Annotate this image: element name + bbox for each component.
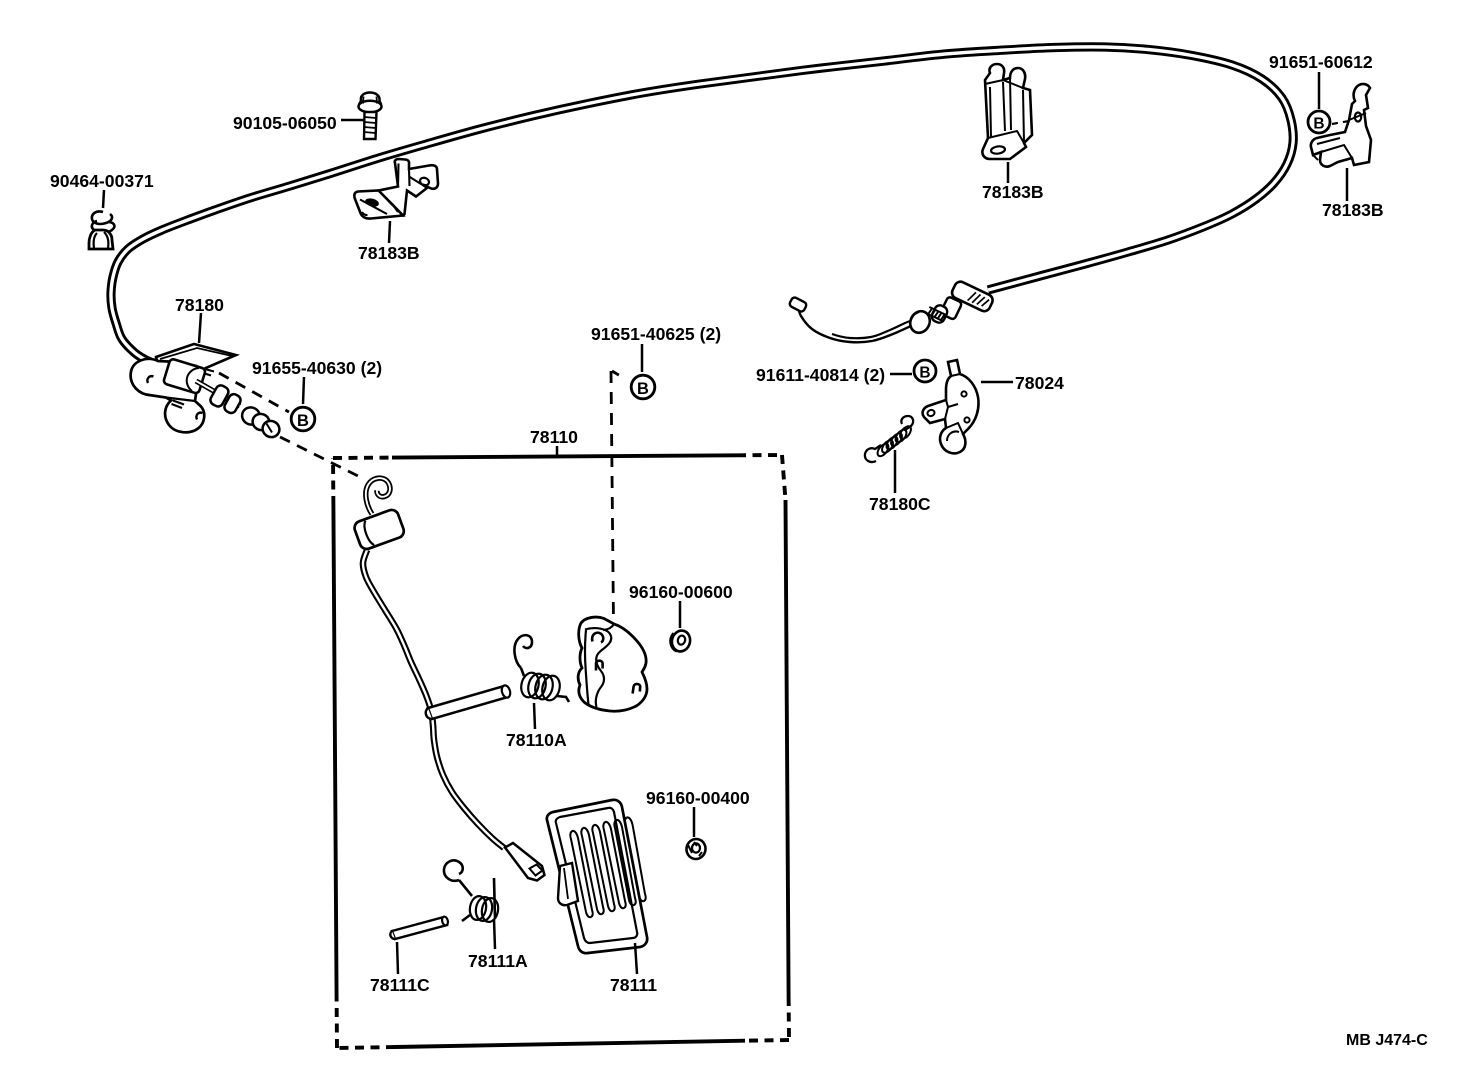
svg-text:90464-00371: 90464-00371 (50, 171, 154, 191)
svg-text:78024: 78024 (1015, 373, 1064, 393)
svg-text:B: B (297, 412, 309, 430)
svg-text:78180: 78180 (175, 295, 224, 315)
svg-text:91611-40814 (2): 91611-40814 (2) (756, 365, 885, 385)
svg-text:90105-06050: 90105-06050 (233, 113, 337, 133)
svg-text:78111C: 78111C (370, 975, 430, 995)
svg-text:B: B (1313, 116, 1324, 133)
svg-text:91651-40625 (2): 91651-40625 (2) (591, 324, 721, 344)
svg-text:MB J474-C: MB J474-C (1346, 1032, 1428, 1049)
svg-text:78183B: 78183B (358, 243, 420, 263)
svg-text:91651-60612: 91651-60612 (1269, 52, 1373, 72)
svg-text:91655-40630 (2): 91655-40630 (2) (252, 358, 382, 378)
svg-text:78183B: 78183B (1322, 200, 1384, 220)
svg-text:78180C: 78180C (869, 494, 931, 514)
svg-text:78111A: 78111A (468, 951, 528, 971)
svg-text:B: B (637, 380, 649, 398)
svg-text:B: B (919, 365, 930, 382)
svg-text:96160-00600: 96160-00600 (629, 582, 733, 602)
svg-text:96160-00400: 96160-00400 (646, 788, 750, 808)
svg-text:78110A: 78110A (506, 730, 567, 750)
svg-text:78111: 78111 (610, 975, 657, 995)
svg-text:78183B: 78183B (982, 182, 1044, 202)
svg-text:78110: 78110 (530, 427, 578, 447)
